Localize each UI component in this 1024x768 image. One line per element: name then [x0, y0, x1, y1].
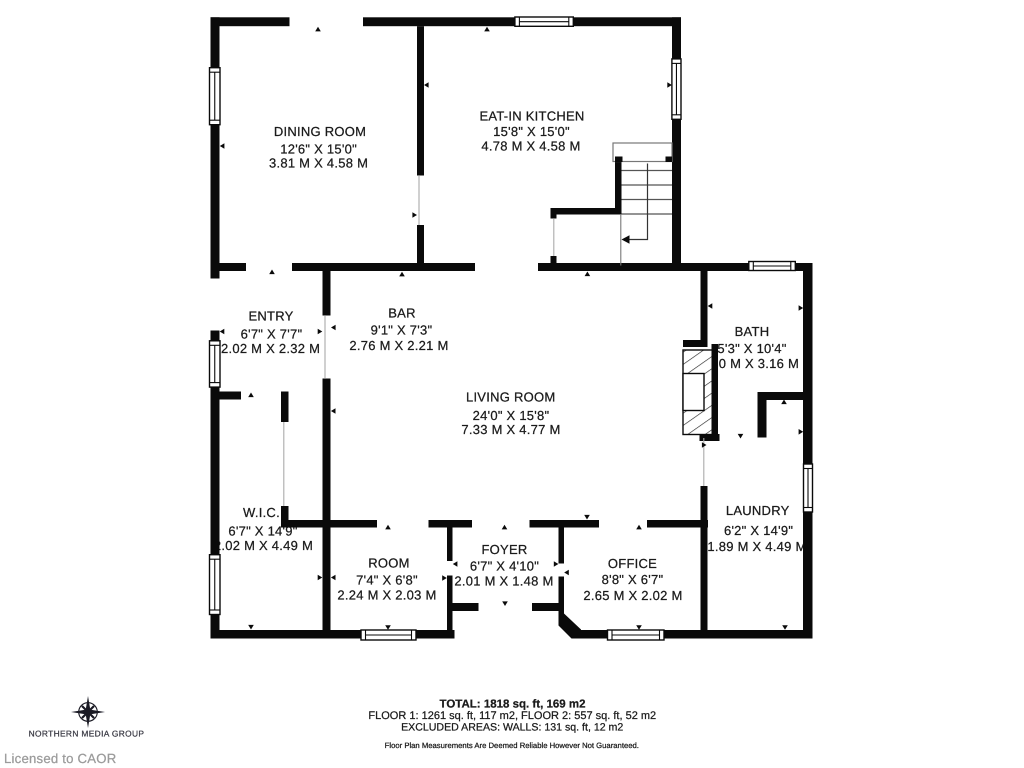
- svg-text:2.24 M X 2.03 M: 2.24 M X 2.03 M: [337, 588, 436, 603]
- svg-text:W.I.C.: W.I.C.: [243, 505, 280, 520]
- svg-text:4.78 M X 4.58 M: 4.78 M X 4.58 M: [481, 139, 580, 154]
- svg-text:Licensed to CAOR: Licensed to CAOR: [4, 751, 116, 766]
- svg-text:2.65 M X 2.02 M: 2.65 M X 2.02 M: [583, 588, 682, 603]
- svg-text:2.02 M X 2.32 M: 2.02 M X 2.32 M: [221, 341, 320, 356]
- svg-text:BAR: BAR: [388, 306, 415, 321]
- svg-text:15'8" X 15'0": 15'8" X 15'0": [493, 124, 570, 139]
- svg-text:NORTHERN MEDIA GROUP: NORTHERN MEDIA GROUP: [29, 729, 145, 739]
- svg-text:EXCLUDED AREAS: WALLS: 131 sq.: EXCLUDED AREAS: WALLS: 131 sq. ft, 12 m2: [401, 721, 623, 733]
- svg-text:5'3" X 10'4": 5'3" X 10'4": [717, 341, 786, 356]
- svg-text:2.76 M X 2.21 M: 2.76 M X 2.21 M: [349, 338, 448, 353]
- svg-text:9'1" X 7'3": 9'1" X 7'3": [371, 323, 433, 338]
- svg-text:OFFICE: OFFICE: [608, 556, 657, 571]
- svg-text:6'2" X 14'9": 6'2" X 14'9": [724, 523, 793, 538]
- svg-text:3.81 M X 4.58 M: 3.81 M X 4.58 M: [269, 156, 368, 171]
- svg-text:6'7" X 7'7": 6'7" X 7'7": [241, 327, 303, 342]
- svg-text:DINING ROOM: DINING ROOM: [274, 124, 366, 139]
- svg-text:7.33 M X 4.77 M: 7.33 M X 4.77 M: [461, 422, 560, 437]
- svg-text:2.01 M X 1.48 M: 2.01 M X 1.48 M: [454, 574, 553, 589]
- svg-text:LAUNDRY: LAUNDRY: [726, 503, 790, 518]
- svg-text:BATH: BATH: [735, 324, 770, 339]
- svg-text:TOTAL: 1818 sq. ft, 169 m2: TOTAL: 1818 sq. ft, 169 m2: [440, 699, 586, 711]
- svg-text:ROOM: ROOM: [368, 556, 409, 571]
- svg-text:EAT-IN KITCHEN: EAT-IN KITCHEN: [479, 109, 584, 124]
- svg-text:LIVING ROOM: LIVING ROOM: [466, 390, 555, 405]
- svg-text:12'6" X 15'0": 12'6" X 15'0": [280, 141, 357, 156]
- svg-text:6'7" X 4'10": 6'7" X 4'10": [470, 559, 539, 574]
- svg-text:7'4" X 6'8": 7'4" X 6'8": [356, 573, 418, 588]
- svg-text:24'0" X 15'8": 24'0" X 15'8": [473, 408, 550, 423]
- svg-text:Floor Plan Measurements Are De: Floor Plan Measurements Are Deemed Relia…: [385, 741, 639, 750]
- svg-text:FLOOR 1: 1261 sq. ft, 117 m2,: FLOOR 1: 1261 sq. ft, 117 m2, FLOOR 2: 5…: [368, 710, 656, 722]
- svg-text:8'8" X 6'7": 8'8" X 6'7": [602, 572, 664, 587]
- svg-text:1.89 M X 4.49 M: 1.89 M X 4.49 M: [707, 539, 806, 554]
- svg-text:ENTRY: ENTRY: [248, 309, 293, 324]
- svg-text:2.02 M X 4.49 M: 2.02 M X 4.49 M: [214, 538, 313, 553]
- svg-text:FOYER: FOYER: [481, 542, 527, 557]
